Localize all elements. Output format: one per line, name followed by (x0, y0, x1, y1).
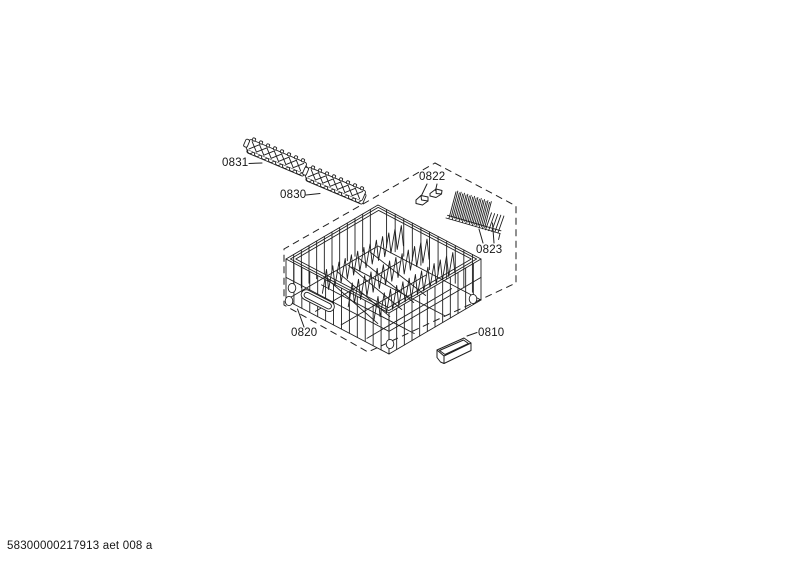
callout-0822: 0822 (419, 171, 445, 183)
footer-document-code: 58300000217913 aet 008 a (7, 540, 153, 552)
exploded-parts-diagram (0, 0, 800, 566)
callout-0830: 0830 (280, 189, 306, 201)
part-0830 (300, 163, 368, 204)
part-0810 (437, 338, 471, 364)
leader-0830 (306, 194, 320, 196)
part-0823 (446, 191, 504, 239)
leader-0831 (249, 163, 262, 164)
leader-0822-a (421, 184, 427, 197)
leader-0823-a (479, 229, 483, 243)
callout-0823: 0823 (476, 244, 502, 256)
callout-0810: 0810 (478, 327, 504, 339)
callout-0831: 0831 (222, 157, 248, 169)
part-0822 (416, 189, 442, 205)
diagram-canvas: 0831 0830 0822 0823 0820 0810 5830000021… (0, 0, 800, 566)
callout-0820: 0820 (291, 327, 317, 339)
leader-0820 (298, 309, 305, 327)
part-0831 (241, 135, 309, 176)
leader-0810 (467, 333, 477, 337)
